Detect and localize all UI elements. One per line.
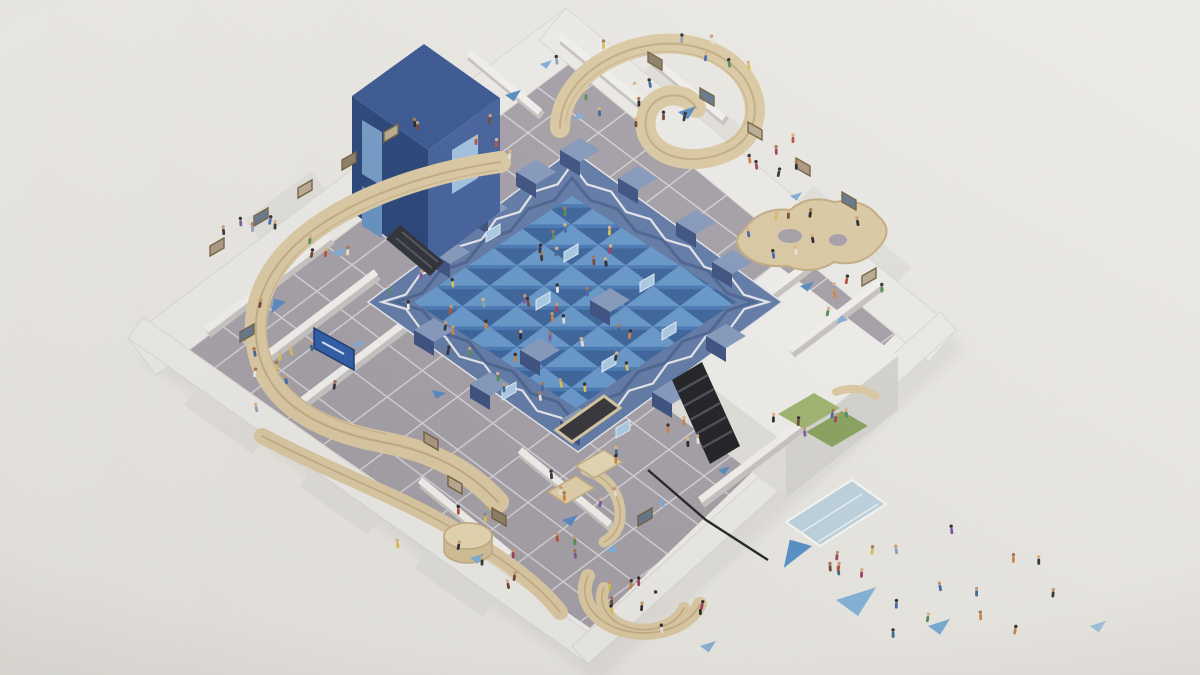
isometric-museum-rendering [0, 0, 1200, 675]
photo-grain [0, 0, 1200, 675]
scene-svg [0, 0, 1200, 675]
